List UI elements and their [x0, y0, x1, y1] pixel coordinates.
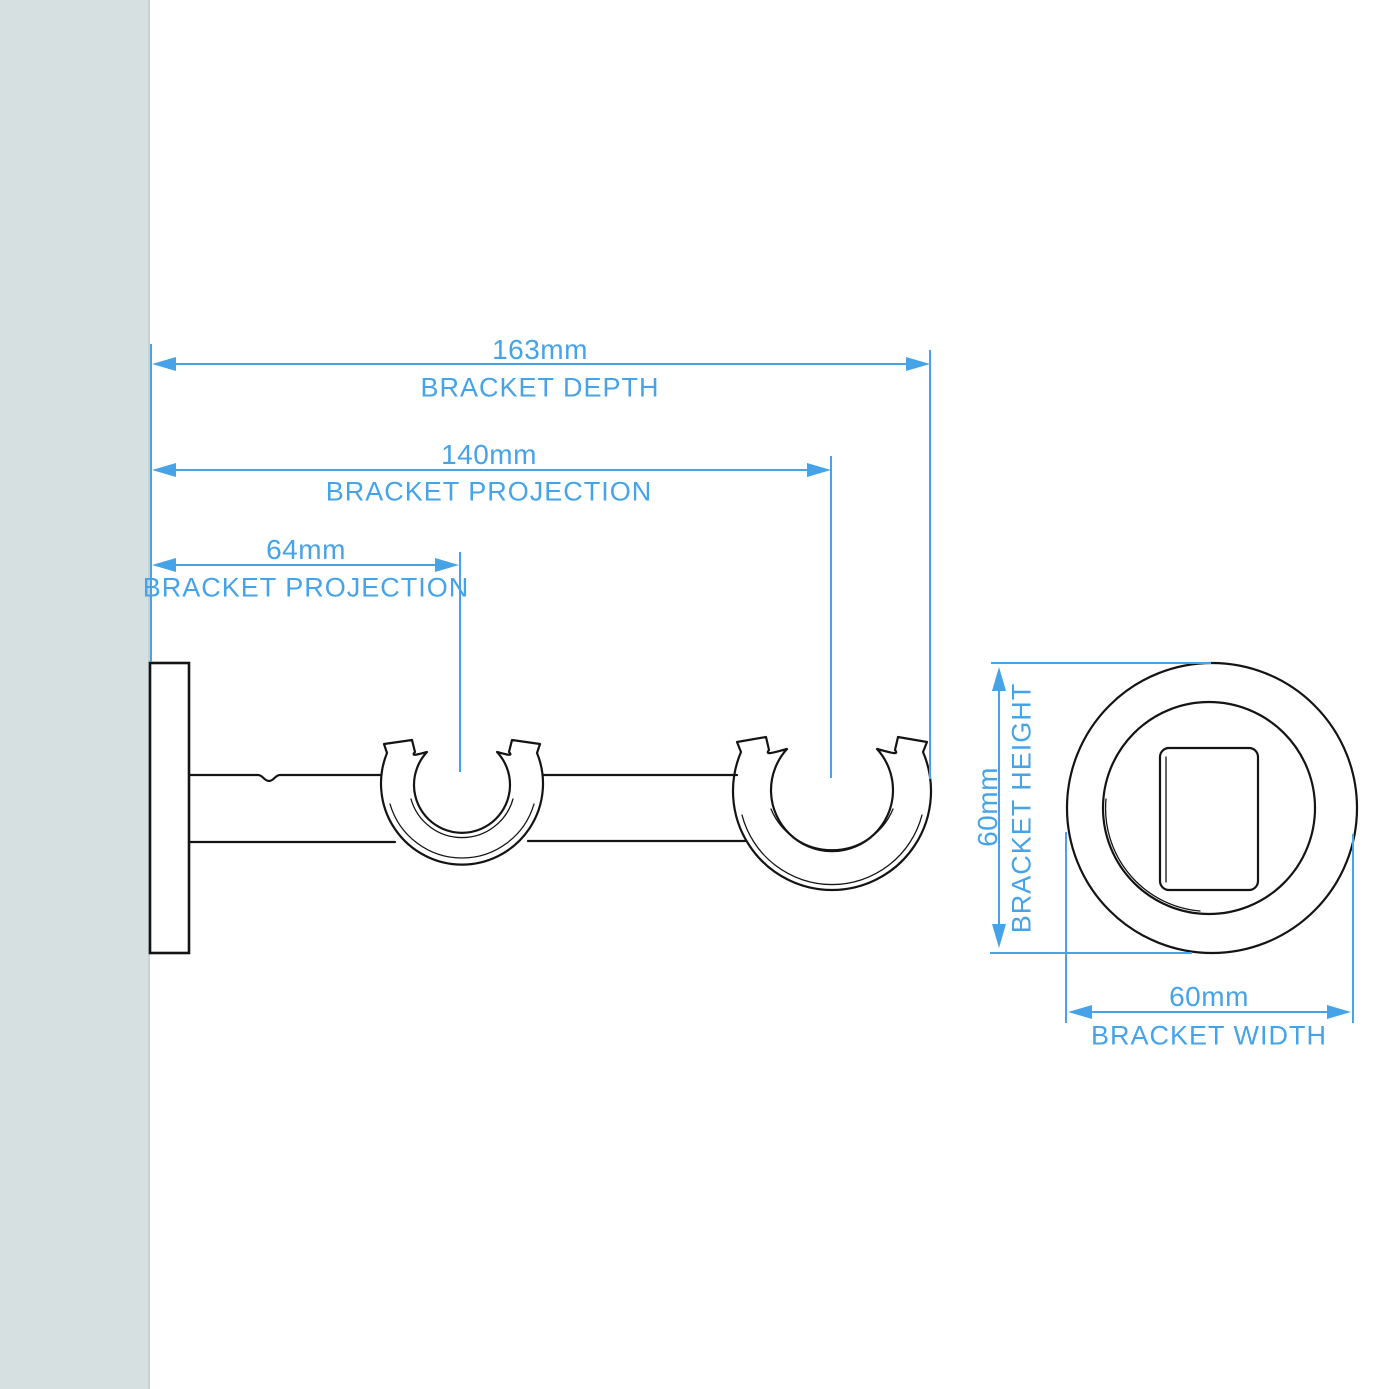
pole-cup-large-detail-inner [771, 809, 893, 850]
arrow-left-icon [1068, 1005, 1092, 1019]
dim-width-value: 60mm [1169, 983, 1249, 1011]
bracket-arm-top [189, 775, 381, 781]
dim-projection-inner-value: 64mm [266, 536, 346, 564]
diagram-canvas: 163mm BRACKET DEPTH 140mm BRACKET PROJEC… [0, 0, 1389, 1389]
dim-depth-label: BRACKET DEPTH [420, 375, 659, 402]
dim-projection-full-value: 140mm [441, 441, 537, 469]
dim-projection-inner-label: BRACKET PROJECTION [143, 575, 470, 602]
arrow-right-icon [906, 357, 930, 371]
dim-depth-value: 163mm [492, 336, 588, 364]
bracket-face-inner-circle-detail [1106, 799, 1200, 911]
dim-height-label: BRACKET HEIGHT [1009, 683, 1036, 934]
pole-slot [1160, 748, 1258, 890]
bracket-face-inner-circle [1103, 702, 1315, 914]
dim-width-label: BRACKET WIDTH [1091, 1023, 1327, 1050]
arrow-left-icon [152, 463, 176, 477]
dim-projection-full-label: BRACKET PROJECTION [326, 479, 653, 506]
arrow-down-icon [992, 924, 1006, 948]
pole-cup-small [381, 740, 543, 865]
arrow-right-icon [807, 463, 831, 477]
side-view-drawing [150, 663, 931, 953]
pole-cup-small-detail-outer [390, 804, 534, 858]
front-view-drawing [1067, 663, 1357, 953]
arrow-right-icon [1327, 1005, 1351, 1019]
arrow-left-icon [152, 357, 176, 371]
bracket-technical-drawing [0, 0, 1389, 1389]
dim-height-value: 60mm [974, 767, 1002, 847]
bracket-face-outer-circle [1067, 663, 1357, 953]
arrow-right-icon [435, 558, 459, 572]
arrow-up-icon [992, 667, 1006, 691]
dimension-lines [151, 344, 1353, 1023]
arrow-left-icon [152, 558, 176, 572]
wall-plate [150, 663, 189, 953]
